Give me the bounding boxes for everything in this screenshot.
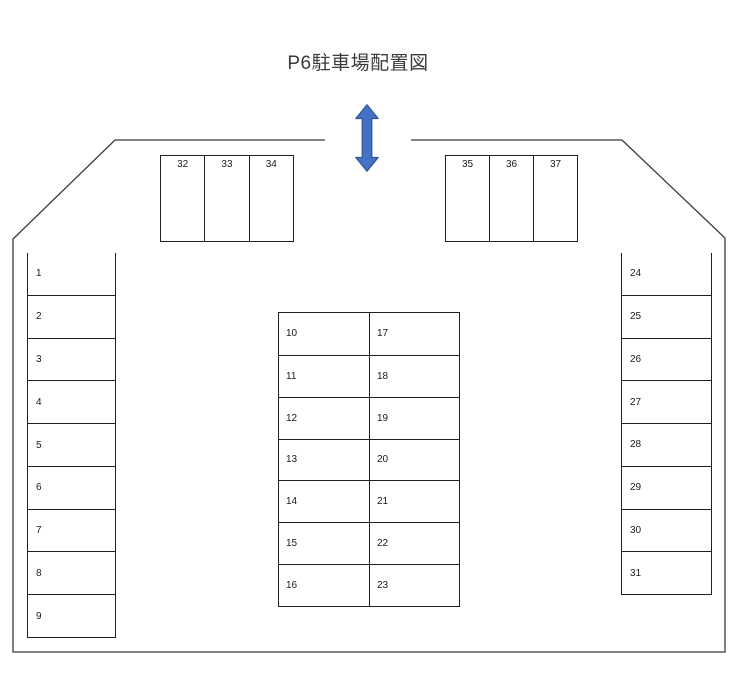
parking-space-17: 17 (369, 313, 459, 355)
parking-space-2: 2 (28, 296, 115, 339)
parking-space-13: 13 (279, 439, 369, 481)
top-left-parking-row: 32 33 34 (160, 155, 294, 242)
parking-space-20: 20 (369, 439, 459, 481)
parking-space-12: 12 (279, 397, 369, 439)
parking-space-34: 34 (250, 156, 293, 241)
parking-space-11: 11 (279, 355, 369, 397)
left-parking-column: 1 2 3 4 5 6 7 8 9 (27, 253, 116, 638)
parking-space-37: 37 (534, 156, 577, 241)
parking-space-25: 25 (622, 296, 711, 339)
parking-space-30: 30 (622, 510, 711, 553)
parking-space-22: 22 (369, 522, 459, 564)
parking-space-6: 6 (28, 467, 115, 510)
parking-space-15: 15 (279, 522, 369, 564)
parking-space-31: 31 (622, 552, 711, 594)
parking-space-1: 1 (28, 253, 115, 296)
parking-space-5: 5 (28, 424, 115, 467)
parking-space-24: 24 (622, 253, 711, 296)
parking-space-27: 27 (622, 381, 711, 424)
right-parking-column: 24 25 26 27 28 29 30 31 (621, 253, 712, 595)
parking-space-29: 29 (622, 467, 711, 510)
parking-space-28: 28 (622, 424, 711, 467)
parking-space-36: 36 (490, 156, 534, 241)
parking-space-26: 26 (622, 339, 711, 382)
parking-space-35: 35 (446, 156, 490, 241)
parking-space-16: 16 (279, 564, 369, 606)
parking-space-33: 33 (205, 156, 249, 241)
entrance-arrow-icon (355, 104, 379, 172)
parking-space-10: 10 (279, 313, 369, 355)
top-right-parking-row: 35 36 37 (445, 155, 578, 242)
parking-space-21: 21 (369, 480, 459, 522)
parking-space-7: 7 (28, 510, 115, 553)
parking-space-19: 19 (369, 397, 459, 439)
parking-space-4: 4 (28, 381, 115, 424)
parking-space-8: 8 (28, 552, 115, 595)
center-parking-block: 10 11 12 13 14 15 16 17 18 19 20 21 22 2… (278, 312, 460, 607)
parking-space-9: 9 (28, 595, 115, 637)
parking-space-32: 32 (161, 156, 205, 241)
parking-space-3: 3 (28, 339, 115, 382)
parking-diagram: P6駐車場配置図 32 33 34 35 36 37 1 2 3 4 5 6 7… (0, 0, 749, 675)
parking-space-23: 23 (369, 564, 459, 606)
parking-space-18: 18 (369, 355, 459, 397)
parking-space-14: 14 (279, 480, 369, 522)
